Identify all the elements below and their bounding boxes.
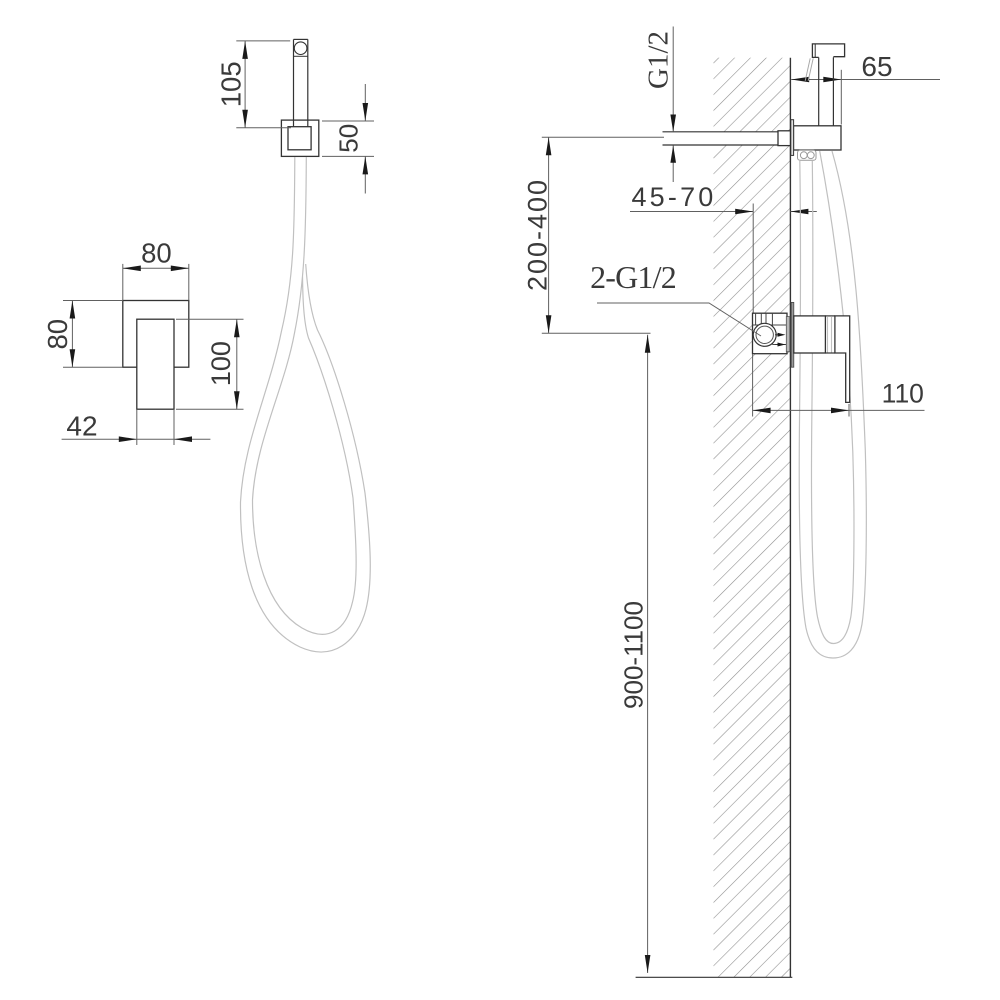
svg-text:G1/2: G1/2	[643, 31, 675, 89]
svg-text:110: 110	[882, 379, 924, 409]
svg-text:80: 80	[42, 319, 73, 350]
svg-text:200-400: 200-400	[523, 178, 553, 291]
svg-text:100: 100	[206, 341, 236, 386]
svg-text:50: 50	[334, 124, 364, 153]
svg-text:900-1100: 900-1100	[619, 601, 649, 709]
svg-text:65: 65	[861, 51, 892, 82]
svg-text:80: 80	[141, 238, 172, 269]
svg-text:42: 42	[66, 411, 97, 442]
svg-text:105: 105	[216, 61, 247, 107]
svg-text:45-70: 45-70	[631, 182, 716, 212]
svg-text:2-G1/2: 2-G1/2	[590, 259, 676, 295]
